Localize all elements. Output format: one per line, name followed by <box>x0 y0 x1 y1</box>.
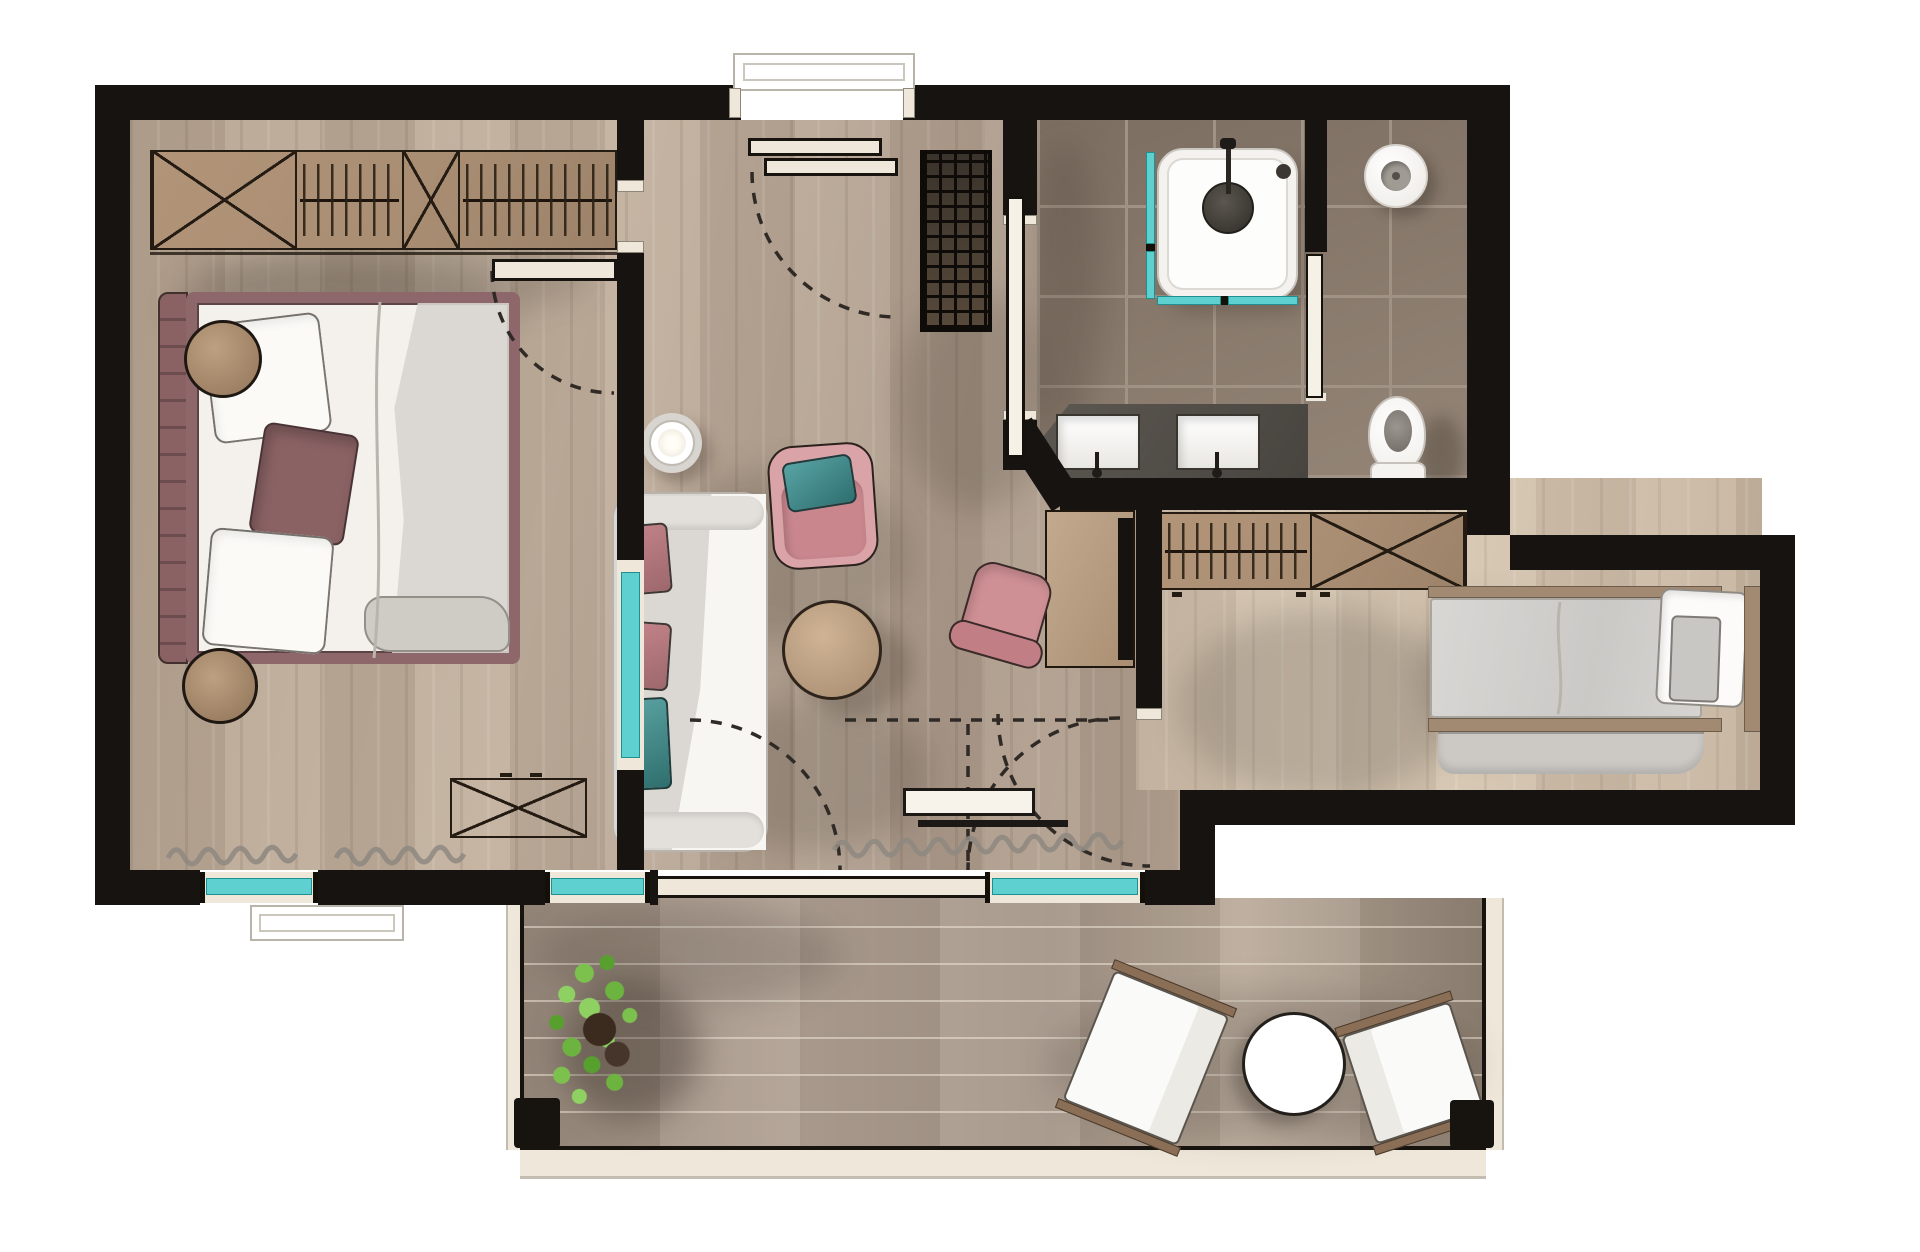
terrace-round-table <box>1242 1012 1346 1116</box>
shower-glass-bottom-1 <box>1157 296 1221 305</box>
bed-pillow-white-bottom <box>201 527 335 655</box>
vanity-faucet-right-knob <box>1212 468 1222 478</box>
wc-sliding-door <box>1306 254 1323 398</box>
vanity-faucet-left-knob <box>1092 468 1102 478</box>
single-bed-bottom-rail <box>1428 718 1722 732</box>
bedroom-window-step <box>250 905 404 941</box>
wall-bottom-b <box>318 870 545 905</box>
hall-wardrobe-foot <box>1320 592 1330 597</box>
window-cap <box>1140 872 1145 903</box>
dresser-handle <box>500 773 512 777</box>
shower-glass-left-2 <box>1146 251 1155 299</box>
wall-bottom-a <box>95 870 200 905</box>
bathroom-sliding-door <box>1006 196 1025 458</box>
bedroom-dresser <box>450 778 587 838</box>
toilet-seat-inner <box>1384 410 1412 452</box>
window-glass-bedroom <box>206 878 312 895</box>
wall-left <box>95 85 130 905</box>
terrace-door-threshold <box>658 876 985 898</box>
wall-wc-partition <box>1305 120 1327 252</box>
wall-right-main <box>1467 85 1510 535</box>
hall-wardrobe-foot <box>1172 592 1182 597</box>
hall-shelf-box-icon <box>1310 514 1465 588</box>
entry-door-leaf-2 <box>764 158 898 176</box>
wardrobe-shelf-box-icon <box>402 152 460 248</box>
wall-top-right <box>903 85 1510 120</box>
divider-jamb-top <box>617 180 644 192</box>
terrace-sliding-rail <box>918 820 1068 827</box>
terrace-post-left <box>514 1098 560 1148</box>
hall-hanger-rod-icon <box>1162 514 1310 588</box>
wardrobe-front-line <box>150 252 617 255</box>
bedside-stool-top <box>184 320 262 398</box>
single-bed-cushion-gray <box>1669 615 1722 703</box>
wall-wing-top <box>1510 535 1795 570</box>
terrace-railing <box>520 1150 1486 1179</box>
window-cap <box>985 872 990 903</box>
window-glass-living-left <box>551 878 644 895</box>
shower-wand-handle <box>1220 138 1236 149</box>
shadow-bathroom <box>1030 140 1100 440</box>
wardrobe-shelf-box-icon <box>152 152 297 248</box>
wall-divider-lower <box>617 770 644 870</box>
shower-glass-joint <box>1221 296 1228 305</box>
shower-glass-joint <box>1146 244 1155 251</box>
shower-hand-wand <box>1226 146 1231 194</box>
hall-wardrobe <box>1160 512 1467 590</box>
wc-basin-drain <box>1392 172 1400 180</box>
wall-wing-right <box>1760 535 1795 825</box>
entry-jamb-right <box>903 88 915 118</box>
wall-divider-stub-top <box>617 120 644 180</box>
window-cap <box>545 872 550 903</box>
window-cap <box>200 872 205 903</box>
potted-plant-icon <box>534 938 660 1114</box>
wall-divider-upper <box>617 253 644 560</box>
terrace-post-right <box>1450 1100 1494 1148</box>
entry-floor-grate <box>920 150 992 332</box>
bed-pillow-maroon <box>248 421 360 547</box>
wall-connector <box>1180 790 1215 905</box>
floor-plan <box>0 0 1920 1252</box>
bed-headboard <box>158 292 188 664</box>
window-glass-living-right <box>992 878 1138 895</box>
pendant-lamp-glow <box>658 429 686 457</box>
window-cap <box>313 872 318 903</box>
shower-glass-bottom-2 <box>1228 296 1298 305</box>
divider-window-glass <box>621 572 640 758</box>
entry-jamb-left <box>729 88 741 118</box>
hall-wardrobe-foot <box>1296 592 1306 597</box>
wall-top-left <box>95 85 741 120</box>
bed-foot-throw <box>364 596 510 652</box>
dresser-handle <box>530 773 542 777</box>
single-bed-blanket-drape <box>1438 732 1704 774</box>
window-cap <box>645 872 650 903</box>
bedroom-wardrobe <box>150 150 617 250</box>
wall-bottom-c <box>650 870 658 905</box>
divider-jamb-mid <box>617 241 644 253</box>
wall-bath-south <box>1060 478 1467 510</box>
wardrobe-hanger-rod-icon <box>297 152 402 248</box>
bedroom-door-leaf <box>492 259 617 281</box>
entry-door-leaf <box>748 138 882 156</box>
shower-small-drain-dot <box>1276 164 1291 179</box>
wardrobe-hanger-rod-icon <box>460 152 615 248</box>
wall-wing-bottom <box>1180 790 1795 825</box>
coffee-table <box>782 600 882 700</box>
wall-hall-stub <box>1136 510 1162 708</box>
hall-stub-jamb <box>1136 708 1162 720</box>
entry-step-outside <box>733 53 915 91</box>
armchair <box>766 440 880 571</box>
tv-on-desk <box>1118 518 1133 660</box>
shower-glass-left-1 <box>1146 152 1155 244</box>
shadow-hallway <box>1180 610 1460 800</box>
bedside-stool-bottom <box>182 648 258 724</box>
terrace-sliding-panel <box>903 788 1035 816</box>
